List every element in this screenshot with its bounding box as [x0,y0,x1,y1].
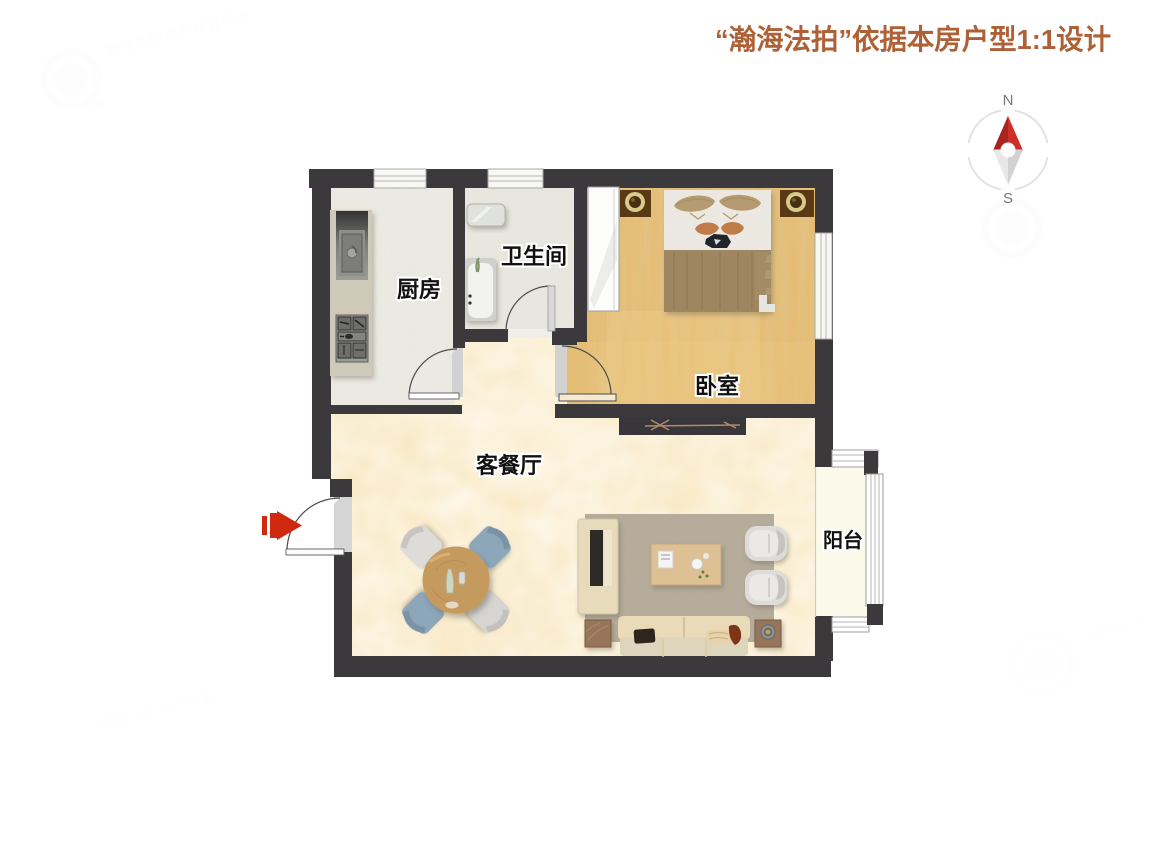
svg-text:厨房: 厨房 [397,277,441,302]
svg-text:卧室: 卧室 [695,374,739,399]
svg-text:客餐厅: 客餐厅 [476,453,542,478]
svg-text:“瀚海法拍”依据本房户型1:1设计: “瀚海法拍”依据本房户型1:1设计 [715,23,1111,55]
svg-text:N: N [1003,92,1014,109]
svg-text:卫生间: 卫生间 [501,244,567,269]
svg-text:S: S [1003,190,1013,207]
svg-text:阳台: 阳台 [823,528,863,552]
